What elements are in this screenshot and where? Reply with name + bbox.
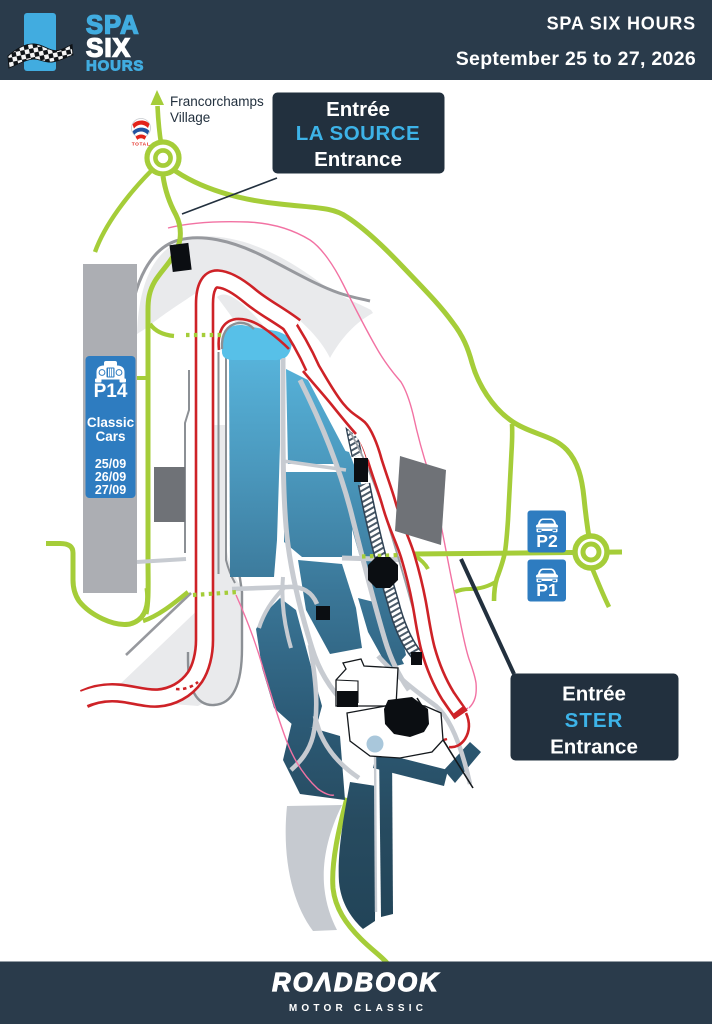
- svg-text:Entrance: Entrance: [550, 736, 638, 759]
- svg-text:P14: P14: [94, 381, 128, 402]
- svg-text:September 25 to 27, 2026: September 25 to 27, 2026: [456, 48, 696, 70]
- svg-text:TOTAL: TOTAL: [132, 142, 151, 148]
- svg-text:25/09: 25/09: [95, 457, 126, 471]
- svg-text:ROΛDBOOK: ROΛDBOOK: [272, 969, 440, 997]
- svg-text:26/09: 26/09: [95, 470, 126, 484]
- svg-text:SPA SIX HOURS: SPA SIX HOURS: [547, 14, 696, 34]
- svg-text:LA SOURCE: LA SOURCE: [296, 122, 420, 145]
- svg-text:27/09: 27/09: [95, 483, 126, 497]
- svg-text:Entrée: Entrée: [326, 98, 390, 121]
- svg-text:Entrée: Entrée: [562, 683, 626, 706]
- svg-text:Cars: Cars: [95, 429, 125, 444]
- svg-text:P2: P2: [536, 531, 558, 551]
- svg-text:HOURS: HOURS: [86, 58, 144, 75]
- svg-text:Village: Village: [170, 110, 210, 125]
- svg-text:Entrance: Entrance: [314, 148, 402, 171]
- svg-text:P1: P1: [536, 580, 558, 600]
- svg-text:MOTOR CLASSIC: MOTOR CLASSIC: [289, 1003, 427, 1014]
- svg-text:Francorchamps: Francorchamps: [170, 94, 264, 109]
- svg-text:Classic: Classic: [87, 415, 135, 430]
- svg-text:STER: STER: [565, 709, 624, 732]
